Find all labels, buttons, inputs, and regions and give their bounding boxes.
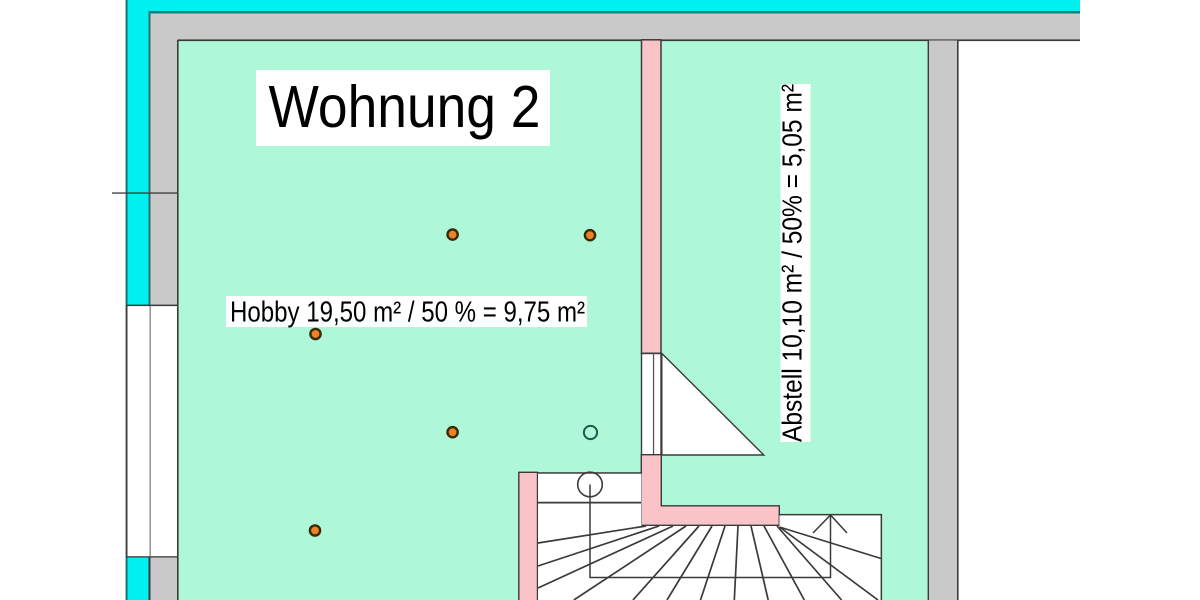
svg-text:Wohnung 2: Wohnung 2 xyxy=(269,74,541,140)
svg-text:Hobby 19,50 m² / 50 % = 9,75 m: Hobby 19,50 m² / 50 % = 9,75 m² xyxy=(230,297,585,329)
svg-text:Abstell 10,10 m² / 50% = 5,05: Abstell 10,10 m² / 50% = 5,05 m² xyxy=(777,84,808,442)
